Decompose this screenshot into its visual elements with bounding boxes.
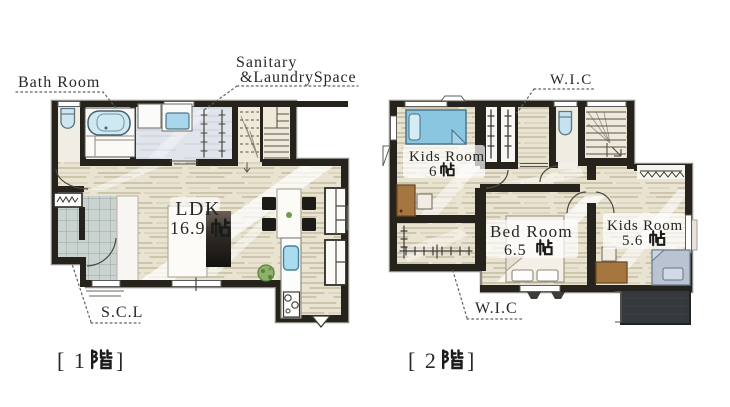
svg-text:[ 2: [ 2 (408, 348, 438, 373)
svg-text:6.5: 6.5 (504, 242, 526, 259)
svg-text:Kids Room: Kids Room (607, 218, 683, 234)
svg-text:16.9: 16.9 (170, 218, 206, 238)
svg-text:&LaundrySpace: &LaundrySpace (240, 69, 357, 86)
svg-text:5.6: 5.6 (622, 233, 643, 249)
svg-text:]: ] (467, 348, 475, 373)
svg-text:W.I.C: W.I.C (550, 72, 593, 88)
svg-text:Bath Room: Bath Room (18, 74, 100, 91)
svg-text:[ 1: [ 1 (57, 348, 87, 373)
svg-text:W.I.C: W.I.C (475, 300, 518, 317)
svg-text:Bed Room: Bed Room (490, 222, 573, 241)
svg-text:6: 6 (429, 164, 437, 180)
svg-text:]: ] (116, 348, 124, 373)
svg-text:S.C.L: S.C.L (101, 304, 143, 321)
svg-text:Kids Room: Kids Room (409, 149, 485, 165)
svg-text:LDK: LDK (175, 198, 221, 220)
